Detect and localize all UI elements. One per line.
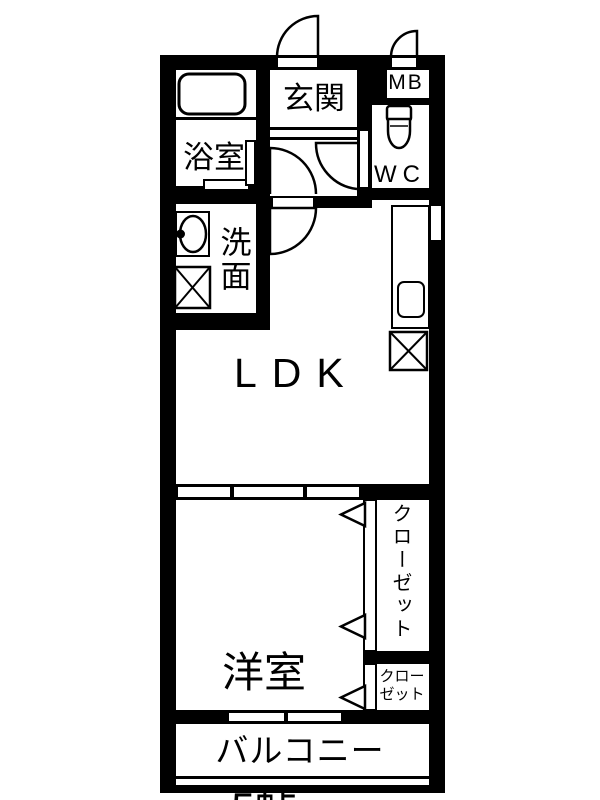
wc-door-leaf xyxy=(359,130,369,188)
wall-closet-mid xyxy=(363,651,445,664)
toilet-icon xyxy=(387,106,411,148)
bathtub-icon xyxy=(179,74,245,114)
bathroom-divider-line xyxy=(176,117,256,120)
wall-bath-genkan xyxy=(256,55,270,330)
wall-wc-bottom xyxy=(357,188,429,200)
bath-door-leaf-horizontal xyxy=(204,180,249,190)
floorplan-page: 玄関 MB WC 浴室 洗面 LDK 洋室 5帖 クローゼット クローゼット バ… xyxy=(0,0,600,800)
balcony-label: バルコニー xyxy=(199,734,401,769)
closet-triangle-top xyxy=(341,503,365,526)
refrigerator-space-icon xyxy=(390,332,427,370)
wall-mb-bottom xyxy=(372,98,429,105)
wall-washroom-bottom xyxy=(176,313,270,330)
washbasin-tap-icon xyxy=(176,230,185,239)
closet-tall-label: クローゼット xyxy=(389,503,410,641)
ldk-door-leaf xyxy=(272,197,314,208)
bathroom-label: 浴室 xyxy=(176,142,252,175)
genkan-label: 玄関 xyxy=(270,83,358,116)
ldk-door-arc xyxy=(270,208,316,254)
entrance-door-arc xyxy=(277,16,318,57)
western-room-label-line1: 洋室 xyxy=(178,650,350,695)
kitchen-sink-icon xyxy=(398,282,424,317)
western-room-label-line2: 5帖 xyxy=(178,785,350,800)
washroom-door-arc xyxy=(270,148,316,194)
wall-right xyxy=(429,55,445,793)
washing-machine-pan-icon xyxy=(175,267,210,308)
wall-left xyxy=(160,55,176,793)
meter-box-label: MB xyxy=(383,72,429,94)
sliding-door-panel-1 xyxy=(177,486,231,498)
wc-label: WC xyxy=(371,162,429,187)
side-window xyxy=(431,206,441,240)
sliding-door-panel-2 xyxy=(233,486,304,498)
washroom-label: 洗面 xyxy=(216,226,249,294)
sliding-door-panel-3 xyxy=(306,486,360,498)
entrance-step-line-lower xyxy=(270,137,357,140)
ldk-label: LDK xyxy=(234,352,359,395)
closet-small-label: クローゼット xyxy=(376,668,428,704)
wc-door-arc xyxy=(316,143,357,189)
toilet-bowl xyxy=(388,119,410,148)
entrance-door-leaf xyxy=(277,57,318,68)
meter-box-door-arc xyxy=(391,31,417,57)
meter-box-door-leaf xyxy=(391,57,417,68)
entrance-step-line-upper xyxy=(270,127,357,130)
